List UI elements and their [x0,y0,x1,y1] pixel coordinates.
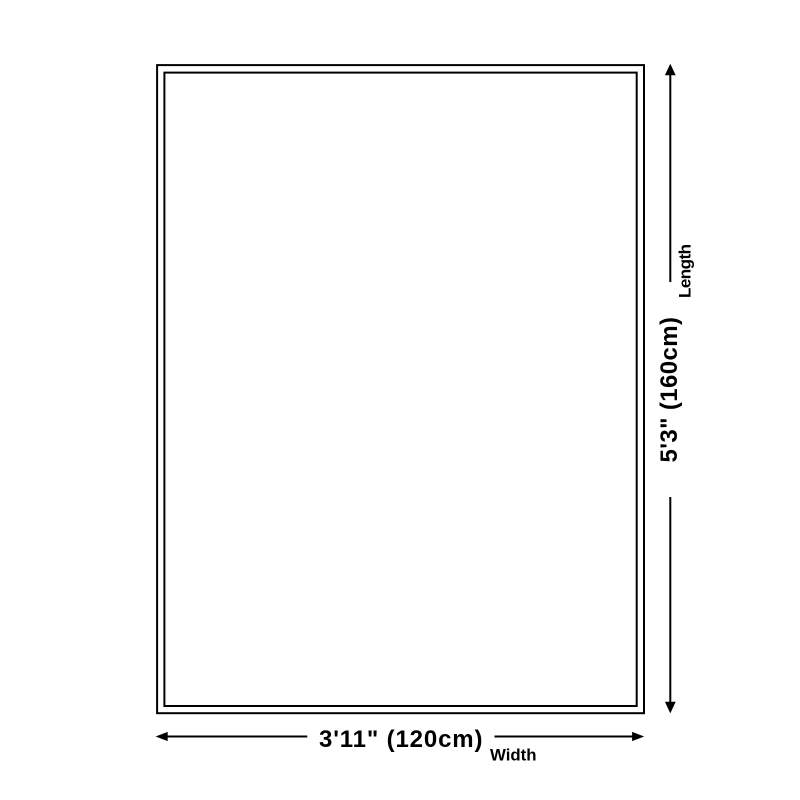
svg-text:3'11" (120cm): 3'11" (120cm) [319,726,483,753]
svg-text:Length: Length [676,244,695,298]
svg-text:5'3" (160cm): 5'3" (160cm) [656,317,683,463]
svg-text:Width: Width [490,746,537,765]
